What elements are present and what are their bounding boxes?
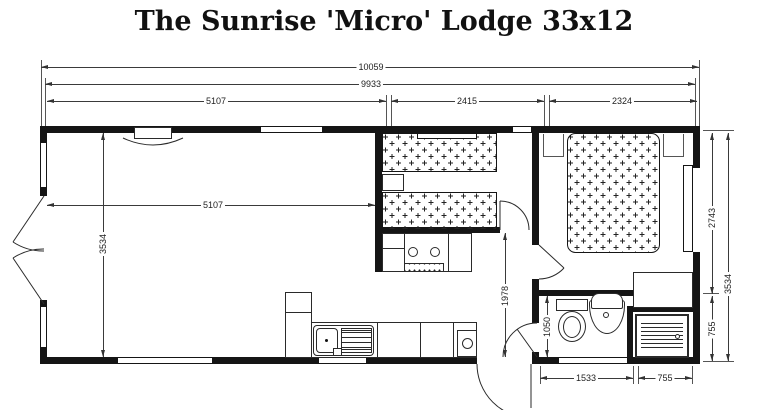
bedside-cabinet-icon <box>382 174 404 191</box>
counter-divider <box>448 233 449 272</box>
dim-label-lounge-depth: 3534 <box>98 232 108 256</box>
wall-bottom-left <box>40 357 477 364</box>
extension-line <box>633 366 634 384</box>
twin-bed-2-icon <box>382 192 497 230</box>
dim-label-shell: 9933 <box>359 79 383 89</box>
wall-shower-left <box>627 306 633 364</box>
extension-line <box>703 361 734 362</box>
wall-top-right <box>532 126 700 133</box>
hob-burner-icon <box>408 247 418 257</box>
master-door-arc-icon <box>539 268 564 279</box>
window-right-opening <box>693 168 700 252</box>
twin-door-arc-icon <box>500 201 529 230</box>
washing-machine-door-icon <box>462 338 473 349</box>
sink-drain-icon <box>325 339 328 342</box>
extension-line <box>692 366 693 384</box>
extension-line <box>540 366 541 384</box>
wardrobe-icon <box>633 272 693 308</box>
extension-line <box>699 60 700 126</box>
window-left-upper <box>40 142 47 188</box>
dim-overall-depth <box>728 133 729 361</box>
basin-top-icon <box>591 293 623 309</box>
hob-burner-icon <box>430 247 440 257</box>
fireplace-curve-icon <box>123 138 183 145</box>
counter-divider <box>420 322 421 358</box>
dim-label-twin-top: 2415 <box>455 96 479 106</box>
extension-line <box>544 95 545 126</box>
dim-label-shower-width: 755 <box>655 373 674 383</box>
kitchen-counter-return <box>285 292 312 358</box>
french-door-opening <box>40 196 47 300</box>
dim-label-master-depth: 2743 <box>707 206 717 230</box>
page-title: The Sunrise 'Micro' Lodge 33x12 <box>0 6 768 37</box>
counter-divider <box>285 312 312 313</box>
window-left-lower <box>40 306 47 348</box>
window-master-right <box>683 165 693 252</box>
master-door-opening <box>532 245 539 279</box>
extension-line <box>703 130 734 131</box>
extension-line <box>638 366 639 384</box>
dim-label-kitchen-depth: 1978 <box>500 284 510 308</box>
window-hall-top <box>512 126 532 133</box>
extension-line <box>41 60 42 126</box>
counter-divider <box>382 248 404 249</box>
dim-label-wc-depth: 1050 <box>542 315 552 339</box>
window-lounge-bottom <box>117 357 213 364</box>
sink-drainer-icon <box>341 328 372 353</box>
dim-label-lounge-top: 5107 <box>204 96 228 106</box>
shower-drain-icon <box>675 334 680 339</box>
counter-divider <box>453 322 454 358</box>
oven-icon <box>404 263 444 272</box>
bathroom-door-opening <box>532 323 539 352</box>
entrance-door-arc-icon <box>477 364 531 410</box>
toilet-cistern-icon <box>556 299 588 311</box>
dim-label-shower-height: 755 <box>707 319 717 338</box>
window-kitchen-bottom <box>318 357 367 364</box>
dim-label-bathroom-length: 1533 <box>574 373 598 383</box>
nightstand-left-icon <box>543 134 564 157</box>
floor-plan: The Sunrise 'Micro' Lodge 33x12 <box>0 0 768 410</box>
window-lounge-top <box>260 126 323 133</box>
sink-tap-icon <box>333 348 342 356</box>
wall-lounge-twin <box>375 133 382 272</box>
window-twin-top <box>417 133 477 139</box>
dim-label-overall: 10059 <box>356 62 385 72</box>
extension-line <box>386 95 387 126</box>
nightstand-right-icon <box>663 134 684 157</box>
dim-label-lounge-inner: 5107 <box>201 200 225 210</box>
dim-label-overall-depth: 3534 <box>723 272 733 296</box>
master-door-leaf-icon <box>539 245 564 268</box>
counter-divider <box>377 322 378 358</box>
double-bed-icon <box>567 133 660 253</box>
dim-label-master-top: 2324 <box>610 96 634 106</box>
toilet-bowl-inner-icon <box>563 316 581 338</box>
fireplace-icon <box>134 127 172 139</box>
window-bathroom-bottom <box>558 357 628 364</box>
basin-tap-icon <box>603 312 609 318</box>
